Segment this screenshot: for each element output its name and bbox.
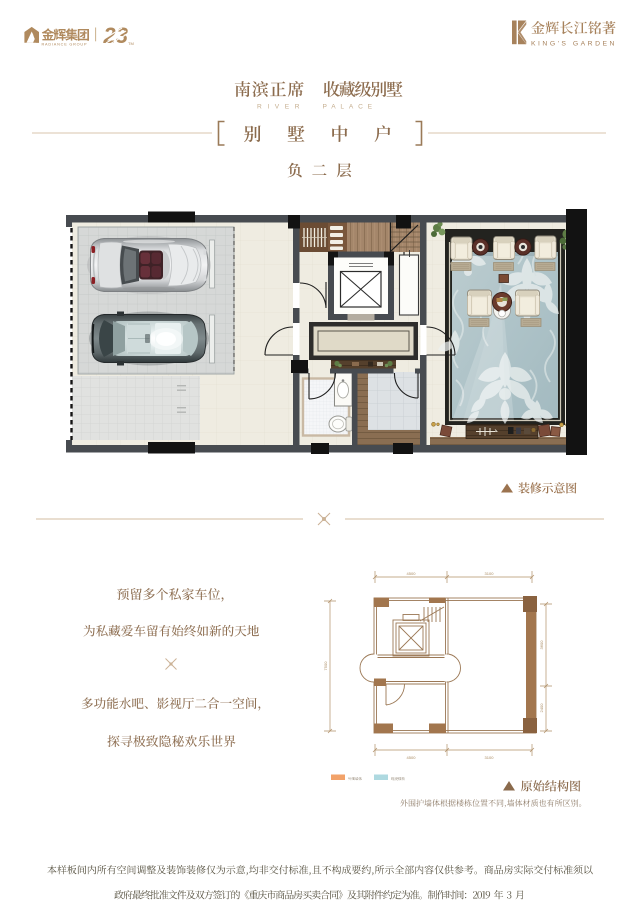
svg-text:TM: TM xyxy=(128,41,134,46)
svg-text:2400: 2400 xyxy=(539,703,544,713)
svg-text:3600: 3600 xyxy=(539,640,544,650)
svg-text:RIVER: RIVER xyxy=(257,104,305,111)
svg-text:3100: 3100 xyxy=(485,755,495,760)
svg-text:7500: 7500 xyxy=(323,661,328,671)
svg-text:PALACE: PALACE xyxy=(323,104,377,111)
svg-text:3100: 3100 xyxy=(485,571,495,576)
svg-text:KING'S GARDEN: KING'S GARDEN xyxy=(531,41,617,48)
svg-text:4500: 4500 xyxy=(407,571,417,576)
svg-text:RADIANCE GROUP: RADIANCE GROUP xyxy=(42,42,88,46)
svg-text:4500: 4500 xyxy=(407,755,417,760)
